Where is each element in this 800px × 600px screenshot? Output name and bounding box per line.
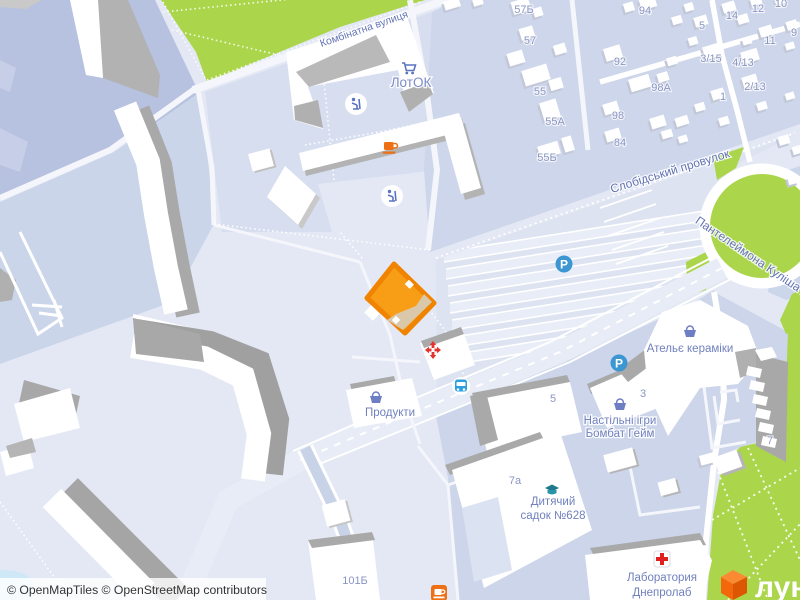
svg-text:Бомбат Гейм: Бомбат Гейм <box>586 428 655 440</box>
svg-text:Лаборатория: Лаборатория <box>627 572 697 584</box>
svg-text:98: 98 <box>612 110 624 122</box>
svg-text:1: 1 <box>720 91 726 103</box>
svg-text:Продукти: Продукти <box>365 407 415 419</box>
svg-text:Дитячий: Дитячий <box>531 496 576 508</box>
svg-text:© OpenMapTiles © OpenStreetMap: © OpenMapTiles © OpenStreetMap contribut… <box>7 583 267 597</box>
svg-text:11: 11 <box>764 35 775 47</box>
svg-text:84: 84 <box>614 137 626 149</box>
svg-text:5: 5 <box>699 20 705 32</box>
svg-text:7а: 7а <box>509 475 522 487</box>
svg-text:55Б: 55Б <box>537 152 556 164</box>
svg-text:55: 55 <box>534 86 546 98</box>
svg-text:2/13: 2/13 <box>744 81 765 93</box>
svg-text:Настільні ігри: Настільні ігри <box>584 415 657 427</box>
svg-text:4/13: 4/13 <box>732 57 753 69</box>
svg-text:Ательє кераміки: Ательє кераміки <box>647 343 734 355</box>
svg-text:P: P <box>615 357 623 371</box>
svg-text:101Б: 101Б <box>342 575 368 587</box>
svg-text:57Б: 57Б <box>514 4 533 16</box>
svg-text:14: 14 <box>726 10 738 22</box>
svg-text:12: 12 <box>752 3 764 15</box>
svg-text:57: 57 <box>524 35 536 47</box>
svg-text:5: 5 <box>550 393 556 405</box>
svg-text:55А: 55А <box>545 116 565 128</box>
svg-text:98А: 98А <box>651 82 671 94</box>
svg-text:P: P <box>560 258 568 272</box>
svg-text:садок №628: садок №628 <box>520 510 585 522</box>
svg-text:3/15: 3/15 <box>700 53 721 65</box>
svg-text:ЛотОК: ЛотОК <box>391 75 432 90</box>
svg-text:10: 10 <box>775 0 787 10</box>
svg-text:7: 7 <box>767 435 773 447</box>
svg-text:9: 9 <box>791 27 797 39</box>
svg-text:92: 92 <box>614 56 626 68</box>
svg-text:3: 3 <box>640 388 646 400</box>
svg-text:лун: лун <box>755 571 800 600</box>
svg-text:Днепролаб: Днепролаб <box>633 587 692 599</box>
svg-text:94: 94 <box>639 5 651 17</box>
